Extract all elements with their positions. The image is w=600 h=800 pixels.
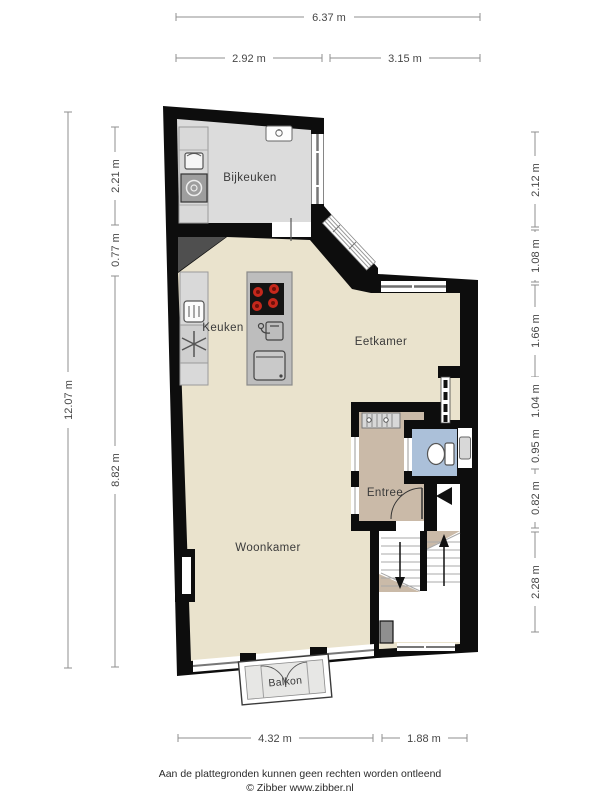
dim-top-seg2-label: 3.15 m xyxy=(388,53,422,65)
dim-right-seg5-label: 0.95 m xyxy=(530,429,542,463)
washing-machine-icon xyxy=(181,174,207,202)
dimension-top-total: 6.37 m xyxy=(176,9,480,24)
floorplan-page: 6.37 m 2.92 m 3.15 m 12.07 m 2.21 m 0.77… xyxy=(0,0,600,800)
dim-right-seg3-label: 1.66 m xyxy=(530,314,542,348)
dimension-left-total: 12.07 m xyxy=(60,112,75,668)
entree-doorway xyxy=(396,521,424,531)
dim-right-seg7-label: 2.28 m xyxy=(530,565,542,599)
room-entree-label: Entree xyxy=(367,487,403,499)
room-bijkeuken-label: Bijkeuken xyxy=(223,172,276,184)
dim-bottom-seg2-label: 1.88 m xyxy=(407,733,441,745)
hand-basin-icon xyxy=(460,437,471,459)
bijkeuken-window xyxy=(312,134,324,204)
dim-left-total-label: 12.07 m xyxy=(63,380,75,420)
cooktop-icon xyxy=(250,283,284,315)
fireplace-icon xyxy=(175,549,195,602)
kitchen-island xyxy=(247,272,292,385)
dim-right-seg2-label: 1.08 m xyxy=(530,239,542,273)
room-eetkamer-label: Eetkamer xyxy=(355,336,407,348)
dim-left-seg1-label: 2.21 m xyxy=(110,159,122,193)
room-woonkamer-label: Woonkamer xyxy=(235,542,300,554)
dimension-top-segments: 2.92 m 3.15 m xyxy=(176,50,480,65)
dim-top-seg1-label: 2.92 m xyxy=(232,53,266,65)
laundry-basket-icon xyxy=(185,153,203,169)
dimension-left-segments: 2.21 m 0.77 m 8.82 m xyxy=(107,127,122,667)
eetkamer-stub-wall xyxy=(438,366,462,378)
dim-left-seg2-label: 0.77 m xyxy=(110,233,122,267)
dim-right-seg6-label: 0.82 m xyxy=(530,481,542,515)
footer-disclaimer: Aan de plattegronden kunnen geen rechten… xyxy=(159,768,442,780)
dimension-right-segments: 2.12 m 1.08 m 1.66 m 1.04 m 0.95 m 0.82 … xyxy=(527,132,542,632)
bijkeuken-counter xyxy=(179,127,208,223)
oven-icon xyxy=(184,301,204,322)
eetkamer-window xyxy=(381,281,446,292)
dashed-wall-opening xyxy=(441,377,450,423)
room-keuken-label: Keuken xyxy=(202,322,243,334)
dim-top-total-label: 6.37 m xyxy=(312,12,346,24)
dimension-bottom-segments: 4.32 m 1.88 m xyxy=(178,730,467,745)
stairwell-left-wall xyxy=(370,521,379,652)
stairwell-window xyxy=(397,643,455,651)
dim-right-seg1-label: 2.12 m xyxy=(530,163,542,197)
dim-right-seg4-label: 1.04 m xyxy=(530,384,542,418)
toilet-icon xyxy=(428,443,455,465)
floorplan-canvas: 6.37 m 2.92 m 3.15 m 12.07 m 2.21 m 0.77… xyxy=(0,0,600,800)
dishwasher-icon xyxy=(254,351,285,380)
balcony: Balkon xyxy=(238,654,331,705)
stairwell-door xyxy=(380,621,393,643)
footer-copyright: © Zibber www.zibber.nl xyxy=(246,782,354,794)
dim-left-seg3-label: 8.82 m xyxy=(110,453,122,487)
boiler-sink-icon xyxy=(266,126,292,141)
dim-bottom-seg1-label: 4.32 m xyxy=(258,733,292,745)
radiator-icon xyxy=(362,413,400,428)
